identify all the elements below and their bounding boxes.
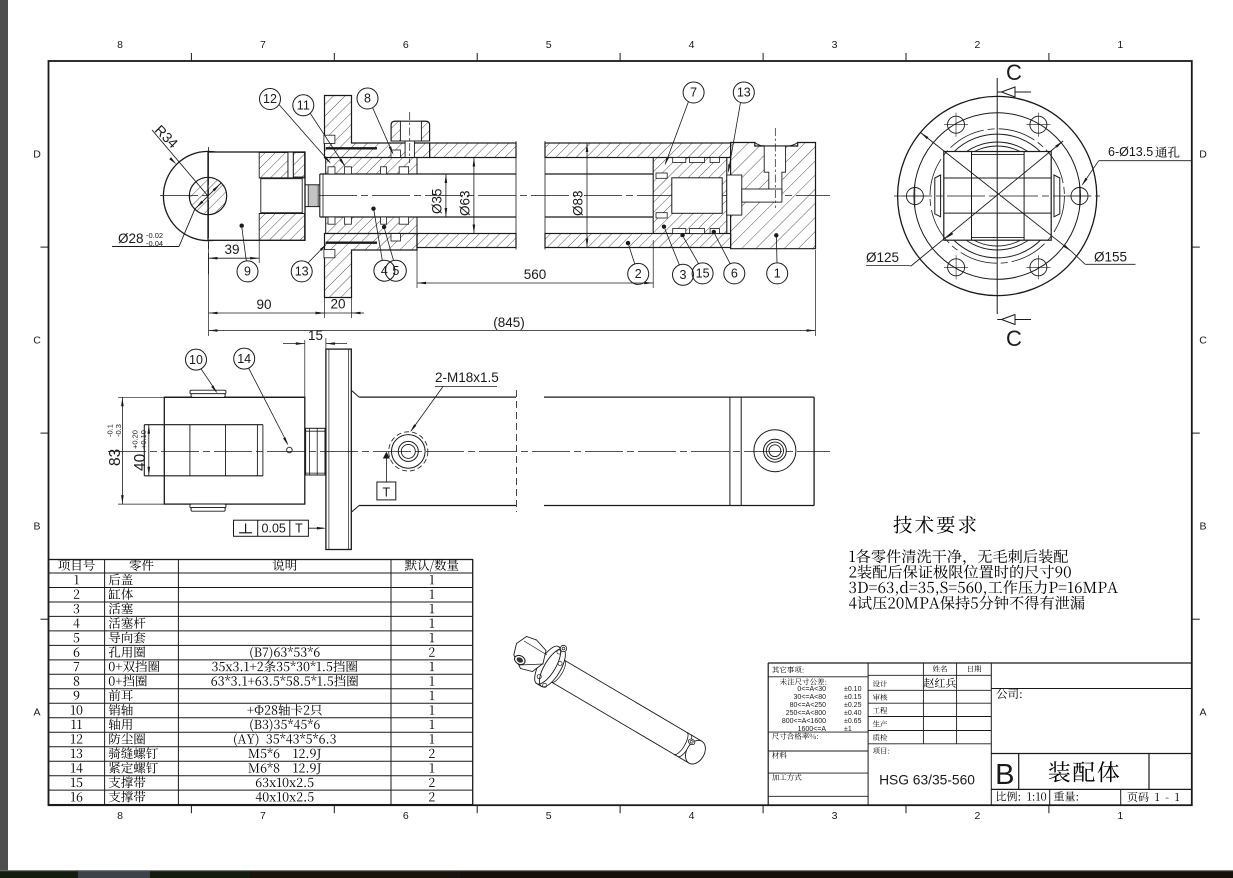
svg-text:C: C (1006, 60, 1022, 85)
svg-text:14: 14 (237, 352, 251, 366)
svg-text:1600<=A: 1600<=A (798, 726, 827, 733)
svg-text:6: 6 (403, 39, 409, 51)
svg-text:3: 3 (832, 39, 838, 51)
svg-text:C: C (33, 335, 41, 347)
svg-text:13: 13 (737, 86, 751, 100)
svg-text:T: T (295, 522, 303, 536)
svg-text:Ø83: Ø83 (571, 190, 586, 216)
svg-text:5: 5 (546, 810, 552, 822)
svg-text:2-M18x1.5: 2-M18x1.5 (435, 370, 499, 385)
svg-text:±0.10: ±0.10 (844, 686, 862, 693)
svg-text:0<=A<30: 0<=A<30 (797, 686, 826, 693)
svg-text:90: 90 (256, 297, 271, 312)
svg-text:7: 7 (260, 810, 266, 822)
svg-text:12: 12 (263, 92, 277, 106)
svg-text:83: 83 (107, 449, 124, 466)
svg-text:80<=A<250: 80<=A<250 (790, 702, 827, 709)
svg-text:Ø28: Ø28 (118, 231, 144, 246)
svg-text:9: 9 (244, 265, 251, 279)
svg-text:40: 40 (132, 453, 149, 471)
svg-text:30<=A<80: 30<=A<80 (793, 694, 826, 701)
svg-text:C: C (1006, 326, 1022, 351)
svg-text:B: B (33, 521, 40, 533)
svg-text:2: 2 (974, 810, 980, 822)
svg-text:4: 4 (689, 810, 695, 822)
svg-text:(845): (845) (493, 315, 525, 330)
svg-text:5: 5 (392, 264, 399, 278)
svg-text:8: 8 (117, 39, 123, 51)
svg-text:10: 10 (189, 353, 203, 367)
svg-text:±0.40: ±0.40 (844, 710, 862, 717)
svg-text:A: A (1199, 707, 1206, 719)
svg-text:D: D (33, 149, 41, 161)
svg-text:Ø35: Ø35 (430, 188, 445, 214)
svg-text:4: 4 (689, 39, 695, 51)
svg-text:6-Ø13.5: 6-Ø13.5 (1108, 145, 1153, 159)
svg-text:Ø125: Ø125 (866, 250, 899, 265)
svg-text:6: 6 (403, 810, 409, 822)
svg-text:T: T (382, 486, 390, 500)
svg-text:±0.15: ±0.15 (844, 694, 862, 701)
svg-text:13: 13 (295, 265, 309, 279)
svg-text:800<=A<1600: 800<=A<1600 (782, 718, 826, 725)
svg-text:8: 8 (364, 92, 371, 106)
svg-text:C: C (1199, 335, 1207, 347)
svg-text:3: 3 (832, 810, 838, 822)
svg-text:-0.04: -0.04 (146, 239, 163, 248)
svg-text:6: 6 (731, 267, 738, 281)
svg-text:560: 560 (524, 267, 547, 282)
svg-text:5: 5 (546, 39, 552, 51)
svg-text:+0.10: +0.10 (139, 430, 148, 449)
svg-text:7: 7 (690, 86, 697, 100)
svg-text:Ø63: Ø63 (458, 190, 473, 216)
svg-text:3: 3 (680, 268, 687, 282)
svg-text:D: D (1199, 149, 1207, 161)
svg-text:0.05: 0.05 (262, 522, 286, 536)
svg-text:Ø155: Ø155 (1094, 249, 1127, 264)
svg-text:15: 15 (308, 328, 323, 343)
svg-text:8: 8 (117, 810, 123, 822)
svg-text:±0.65: ±0.65 (844, 718, 862, 725)
svg-text:±0.25: ±0.25 (844, 702, 862, 709)
svg-text:250<=A<800: 250<=A<800 (786, 710, 826, 717)
svg-text:39: 39 (224, 242, 239, 257)
svg-text:2: 2 (635, 267, 642, 281)
svg-text:±1: ±1 (844, 726, 852, 733)
svg-text:1: 1 (1117, 810, 1123, 822)
svg-text:15: 15 (696, 267, 710, 281)
svg-text:7: 7 (260, 39, 266, 51)
svg-text:-0.3: -0.3 (114, 424, 123, 437)
svg-text:B: B (995, 759, 1014, 791)
svg-text:1: 1 (774, 267, 781, 281)
svg-text:2: 2 (974, 39, 980, 51)
svg-text:11: 11 (297, 99, 310, 113)
svg-text:B: B (1199, 521, 1206, 533)
svg-text:HSG 63/35-560: HSG 63/35-560 (879, 773, 975, 788)
svg-text:A: A (33, 707, 40, 719)
svg-text:1: 1 (1117, 39, 1123, 51)
svg-text:20: 20 (330, 297, 345, 312)
